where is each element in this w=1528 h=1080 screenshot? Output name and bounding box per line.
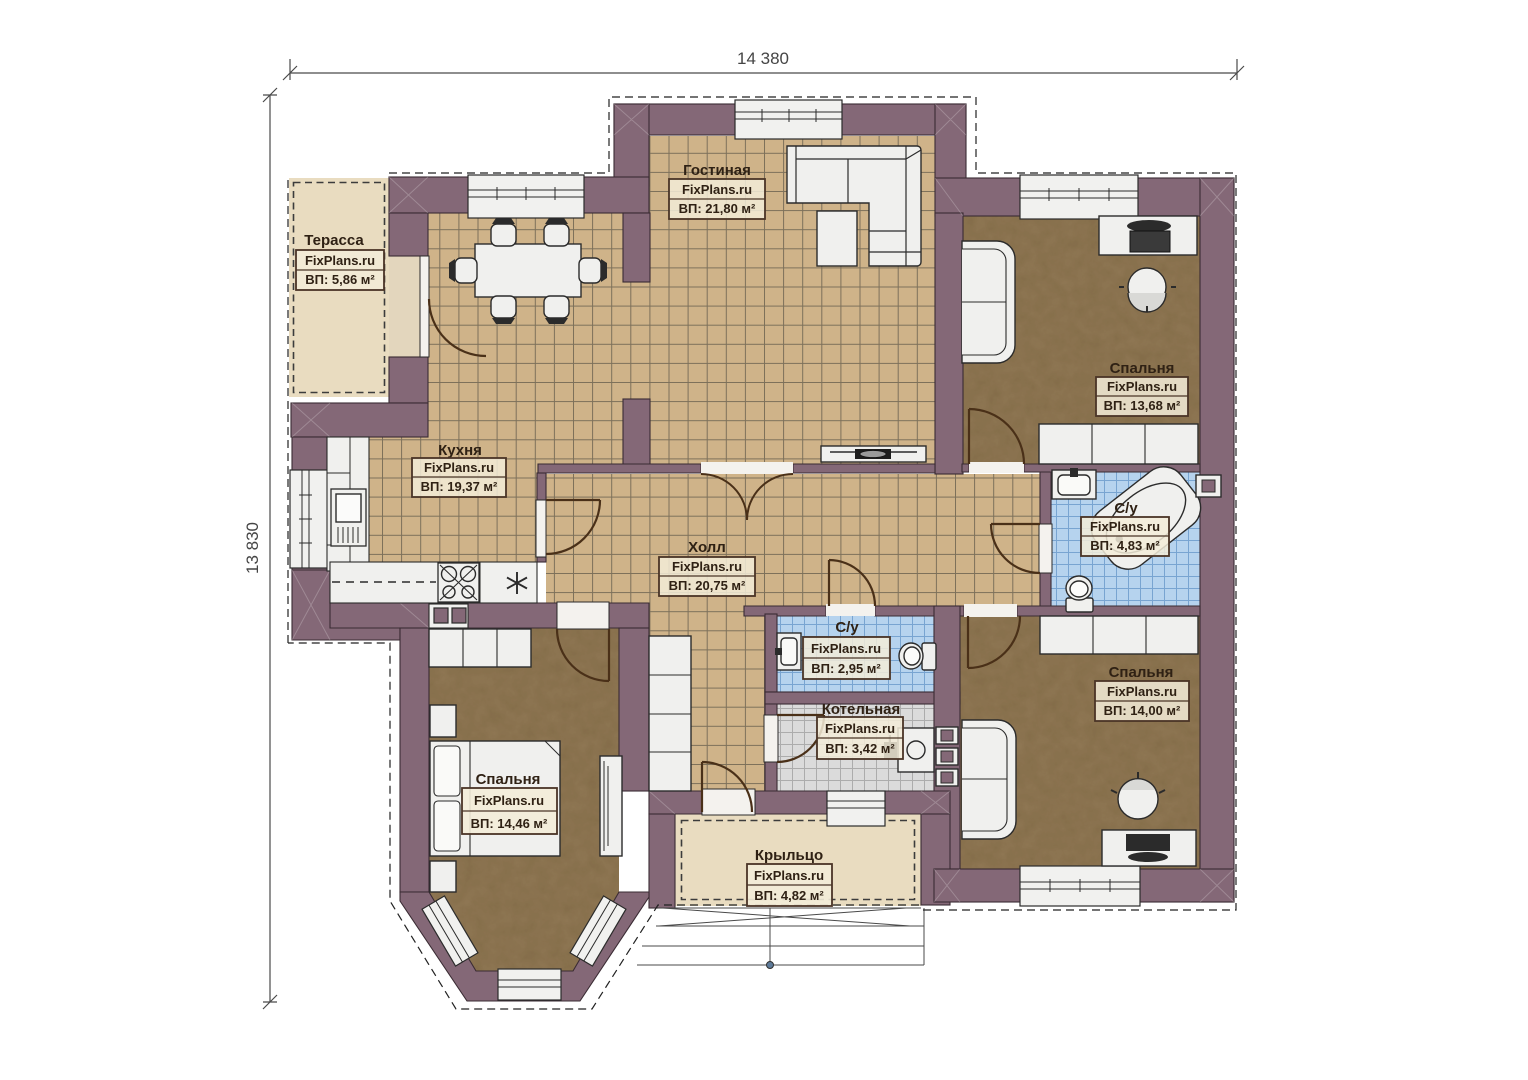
svg-text:ВП: 14,46 м²: ВП: 14,46 м² [471,816,548,831]
svg-text:Спальня: Спальня [476,771,541,788]
svg-text:ВП: 20,75 м²: ВП: 20,75 м² [669,578,746,593]
svg-text:ВП: 4,82 м²: ВП: 4,82 м² [754,888,824,903]
svg-text:14 380: 14 380 [737,49,789,68]
svg-text:FixPlans.ru: FixPlans.ru [811,641,881,656]
svg-text:ВП: 2,95 м²: ВП: 2,95 м² [811,661,881,676]
svg-text:Гостиная: Гостиная [683,162,751,179]
svg-text:FixPlans.ru: FixPlans.ru [754,868,824,883]
svg-text:FixPlans.ru: FixPlans.ru [424,460,494,475]
svg-text:Холл: Холл [688,539,726,556]
svg-text:ВП: 14,00 м²: ВП: 14,00 м² [1104,703,1181,718]
svg-text:FixPlans.ru: FixPlans.ru [305,253,375,268]
svg-text:Котельная: Котельная [822,701,901,718]
svg-text:FixPlans.ru: FixPlans.ru [672,559,742,574]
svg-text:FixPlans.ru: FixPlans.ru [1107,684,1177,699]
svg-text:ВП: 19,37 м²: ВП: 19,37 м² [421,479,498,494]
svg-text:FixPlans.ru: FixPlans.ru [825,721,895,736]
svg-text:FixPlans.ru: FixPlans.ru [1090,519,1160,534]
svg-text:С/у: С/у [835,619,859,636]
svg-text:13 830: 13 830 [243,522,262,574]
svg-text:Терасса: Терасса [304,232,364,249]
svg-text:Спальня: Спальня [1110,360,1175,377]
svg-text:FixPlans.ru: FixPlans.ru [1107,379,1177,394]
svg-text:FixPlans.ru: FixPlans.ru [474,793,544,808]
svg-text:Спальня: Спальня [1109,664,1174,681]
svg-text:Крыльцо: Крыльцо [755,847,823,864]
svg-text:С/у: С/у [1114,500,1138,517]
svg-text:ВП: 13,68 м²: ВП: 13,68 м² [1104,398,1181,413]
svg-text:Кухня: Кухня [438,442,482,459]
svg-text:ВП: 5,86 м²: ВП: 5,86 м² [305,272,375,287]
svg-text:FixPlans.ru: FixPlans.ru [682,182,752,197]
svg-text:ВП: 4,83 м²: ВП: 4,83 м² [1090,538,1160,553]
svg-text:ВП: 3,42 м²: ВП: 3,42 м² [825,741,895,756]
svg-text:ВП: 21,80 м²: ВП: 21,80 м² [679,201,756,216]
